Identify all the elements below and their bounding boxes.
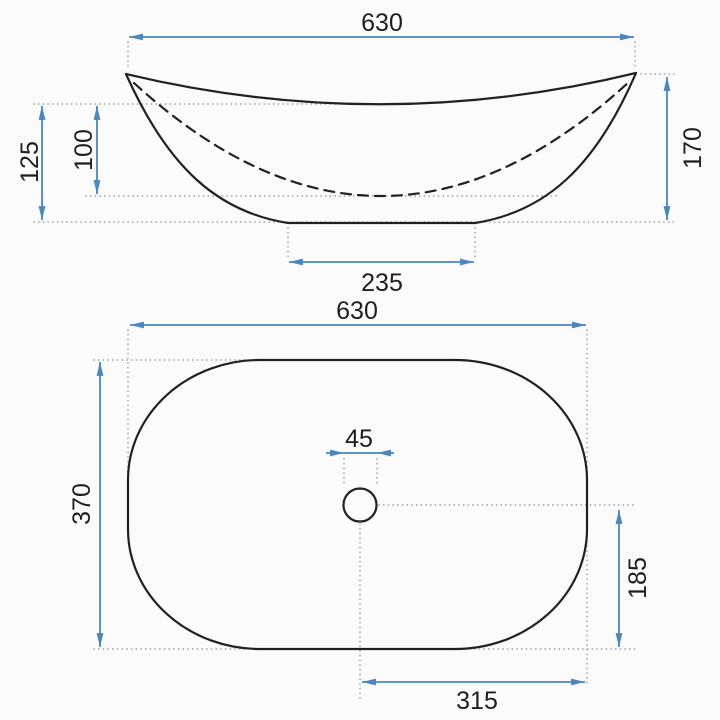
side-view-dimension-labels: 630 170 125 100 235 (16, 9, 707, 297)
basin-technical-drawing: 630 170 125 100 235 (0, 0, 720, 720)
side-view-dimension-lines (42, 37, 667, 262)
basin-inner-profile-hidden-line (134, 81, 630, 196)
dim-label-drain-to-right-edge: 315 (456, 687, 498, 715)
plan-view: 630 370 45 185 315 (68, 297, 652, 715)
dim-label-side-base-width: 235 (361, 269, 403, 297)
dim-label-drain-diameter: 45 (345, 425, 373, 453)
basin-plan-outline (128, 360, 587, 649)
plan-view-construction-lines (94, 330, 636, 702)
basin-rim-curve (126, 73, 636, 104)
side-view-outline (126, 73, 636, 223)
dim-label-side-inner-depth: 100 (70, 129, 98, 171)
dim-label-plan-width: 630 (336, 297, 378, 325)
dim-label-plan-depth: 370 (68, 483, 96, 525)
drawing-sheet: 630 170 125 100 235 (0, 0, 720, 720)
basin-outer-profile (126, 73, 636, 223)
dim-label-side-height: 170 (679, 127, 707, 169)
plan-view-outline (128, 360, 587, 649)
side-view: 630 170 125 100 235 (16, 9, 707, 297)
drain-hole (344, 489, 377, 522)
dim-label-side-width: 630 (361, 9, 403, 37)
dim-label-side-total-depth: 125 (16, 141, 44, 183)
plan-view-dimension-lines (100, 325, 619, 682)
dim-label-drain-to-bottom-edge: 185 (624, 557, 652, 599)
